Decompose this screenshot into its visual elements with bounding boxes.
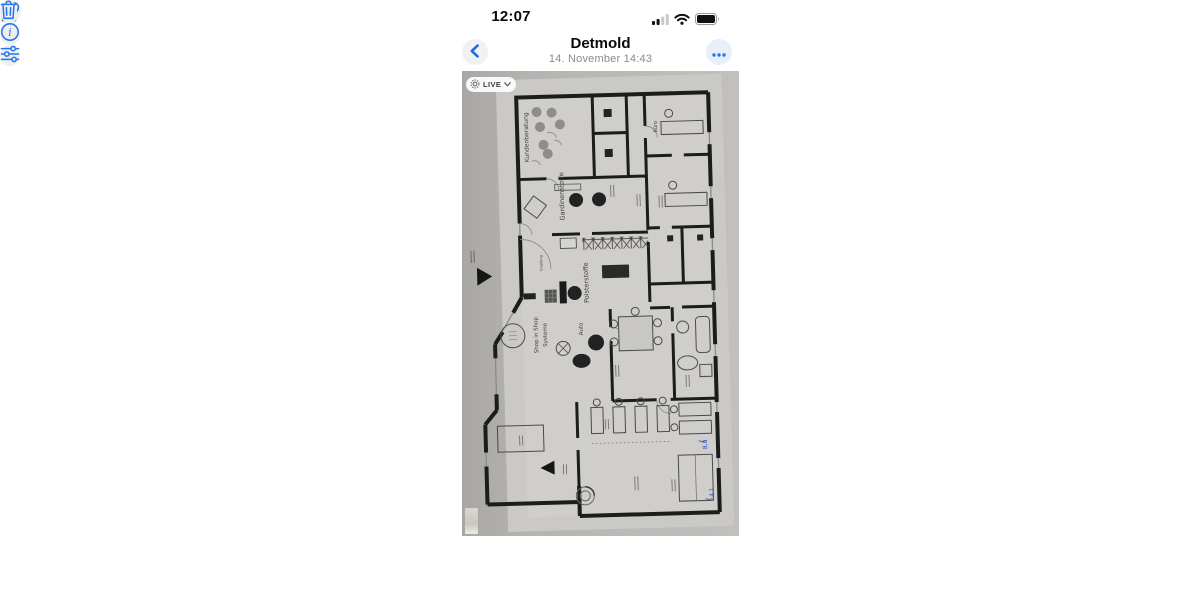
label-systeme: Systeme <box>542 322 549 347</box>
label-shop-in-shop: Shop in Shop <box>533 316 540 353</box>
status-bar-time: 12:07 <box>480 8 542 25</box>
live-badge-label: LIVE <box>483 80 501 89</box>
label-kundenberatung: Kundenberatung <box>523 112 531 162</box>
adjust-button[interactable] <box>0 45 20 66</box>
wifi-icon <box>674 12 690 30</box>
live-photo-badge[interactable]: LIVE <box>466 77 516 92</box>
thumbnail-strip[interactable] <box>465 508 736 534</box>
info-button[interactable]: i <box>0 22 20 45</box>
live-photo-icon <box>470 79 480 91</box>
page-title: Detmold <box>462 36 739 52</box>
battery-full-icon <box>695 12 720 30</box>
ellipsis-icon <box>712 45 726 60</box>
photo-viewer[interactable]: Kundenberatung Gardinenstoffe Polstersto… <box>462 71 739 536</box>
label-auto: Auto <box>578 322 584 336</box>
sliders-icon <box>0 45 20 66</box>
thumbnail[interactable] <box>465 508 478 534</box>
label-empfang: Empfang <box>539 255 543 271</box>
page-subtitle: 14. November 14:43 <box>462 53 739 66</box>
svg-text:i: i <box>8 26 11 39</box>
trash-icon <box>0 0 17 23</box>
floor-plan-image: Kundenberatung Gardinenstoffe Polstersto… <box>462 71 739 536</box>
info-icon: i <box>0 22 20 45</box>
annotation-blue-2: 4,1 <box>709 488 715 497</box>
header-title-block: Detmold 14. November 14:43 <box>462 36 739 66</box>
label-buero: Büro <box>653 121 659 133</box>
more-options-button[interactable] <box>706 39 732 65</box>
chevron-down-icon <box>504 80 511 89</box>
cellular-signal-icon <box>652 12 669 30</box>
label-gardinenstoffe: Gardinenstoffe <box>557 172 566 220</box>
status-bar-icons <box>652 12 720 30</box>
label-polsterstoffe: Polsterstoffe <box>582 262 591 303</box>
thumbnail[interactable] <box>479 508 492 534</box>
delete-button[interactable] <box>0 0 17 23</box>
